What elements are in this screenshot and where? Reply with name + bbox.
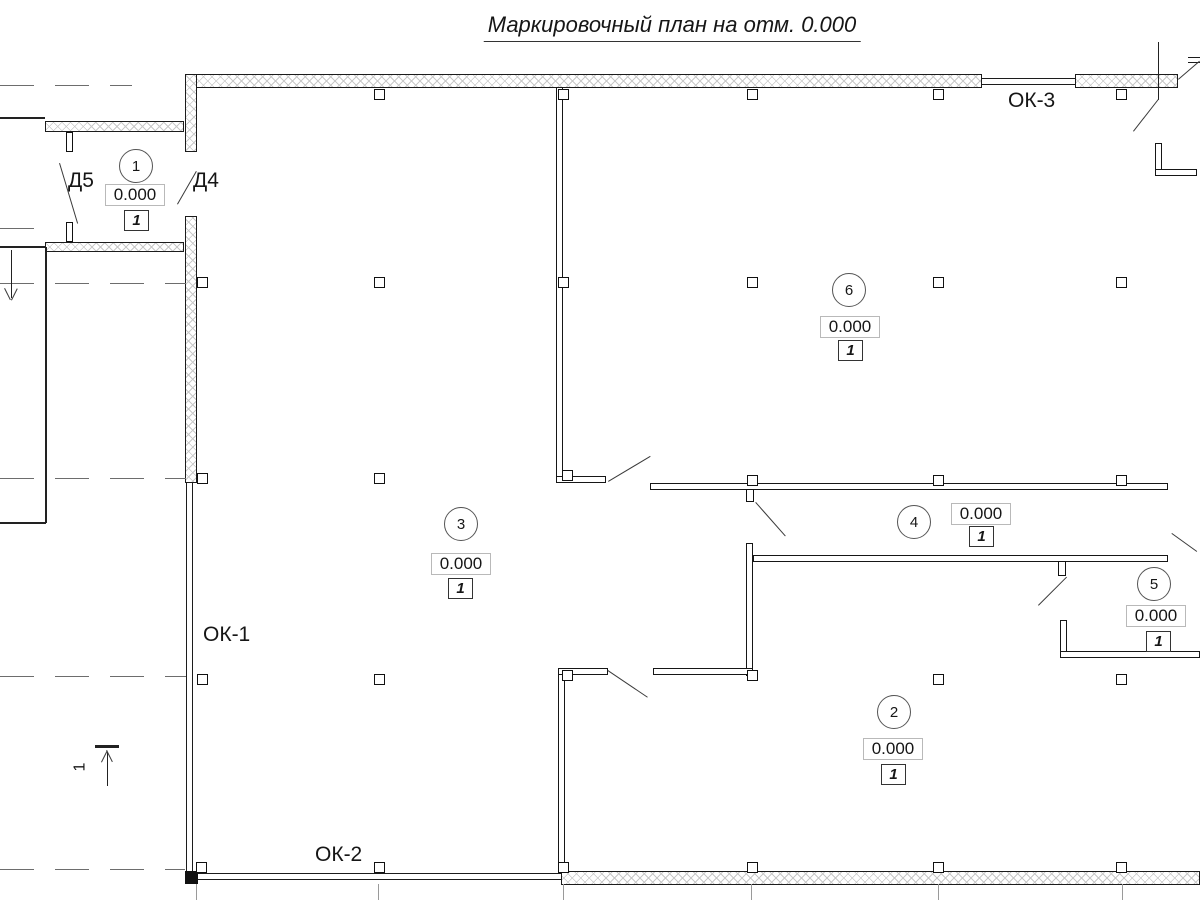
door-swing-room2-left [607, 670, 647, 698]
column-marker [374, 277, 385, 288]
wall-top-right-segment [1075, 74, 1178, 88]
grid-line [938, 884, 939, 900]
column-marker [747, 89, 758, 100]
column-marker [374, 862, 385, 873]
window-label-ok3: ОК-3 [1008, 89, 1055, 113]
partition-horizontal-room4 [753, 555, 1168, 562]
room-floortype-3: 1 [448, 578, 473, 599]
door-swing-room4-left [755, 502, 786, 536]
door-jamb-room2 [1058, 561, 1066, 576]
room-elevation-1: 0.000 [105, 184, 165, 206]
room-floortype-4: 1 [969, 526, 994, 547]
floor-plan: Маркировочный план на отм. 0.000 [0, 0, 1200, 900]
door-leaf-topright [1158, 42, 1159, 100]
partition-horizontal-room2 [653, 668, 753, 675]
direction-arrow-stem [11, 250, 12, 298]
edge-line-topleft [0, 117, 45, 119]
room-number-6: 6 [832, 273, 866, 307]
door-swing-room5 [1171, 533, 1197, 552]
ramp-right-line [45, 247, 47, 523]
grid-line [1122, 884, 1123, 900]
column-marker [558, 862, 569, 873]
room-number-2: 2 [877, 695, 911, 729]
column-marker [562, 470, 573, 481]
section-mark-bar [95, 745, 119, 748]
axis-dashed-5 [0, 676, 186, 677]
room-number-3: 3 [444, 507, 478, 541]
room-floortype-2: 1 [881, 764, 906, 785]
window-label-ok2: ОК-2 [315, 843, 362, 867]
door-jamb-room4 [746, 489, 754, 502]
ramp-bottom-line [0, 522, 46, 524]
axis-dashed-2 [0, 228, 43, 229]
wall-vestibule-top [45, 121, 184, 132]
axis-dashed-1 [0, 85, 132, 86]
section-mark-number: 1 [71, 763, 89, 772]
door-jamb-d5-top [66, 132, 73, 152]
grid-line [378, 884, 379, 900]
grid-line [196, 884, 197, 900]
direction-arrow-head [11, 288, 18, 300]
door-label-d4: Д4 [193, 169, 219, 193]
column-marker [374, 89, 385, 100]
column-marker [558, 89, 569, 100]
room-elevation-4: 0.000 [951, 503, 1011, 525]
column-marker [374, 674, 385, 685]
column-marker [747, 475, 758, 486]
room-number-4: 4 [897, 505, 931, 539]
door-jamb-d5-bottom [66, 222, 73, 242]
column-marker [747, 862, 758, 873]
column-marker [933, 89, 944, 100]
column-marker [197, 674, 208, 685]
wall-left-upper [185, 74, 197, 152]
column-marker [933, 674, 944, 685]
direction-arrow-head [4, 288, 11, 300]
column-marker [933, 277, 944, 288]
partition-l-topright-horizontal [1155, 169, 1197, 176]
wall-top-left-segment [188, 74, 982, 88]
column-marker [562, 670, 573, 681]
partition-horizontal-room6 [650, 483, 1168, 490]
column-marker [747, 670, 758, 681]
door-label-d5: Д5 [68, 169, 94, 193]
grid-line [563, 884, 564, 900]
room-number-1: 1 [119, 149, 153, 183]
partition-vertical-room3 [558, 668, 565, 873]
window-label-ok1: ОК-1 [203, 623, 250, 647]
wall-vestibule-bottom [45, 242, 184, 252]
column-marker [1116, 862, 1127, 873]
room-elevation-5: 0.000 [1126, 605, 1186, 627]
column-marker [1116, 277, 1127, 288]
door-swing-room6 [608, 456, 651, 482]
page-title: Маркировочный план на отм. 0.000 [484, 12, 861, 42]
partition-l-room5-horizontal [1060, 651, 1200, 658]
column-marker [933, 862, 944, 873]
room-elevation-3: 0.000 [431, 553, 491, 575]
room-floortype-6: 1 [838, 340, 863, 361]
room-floortype-5: 1 [1146, 631, 1171, 652]
column-marker [747, 277, 758, 288]
column-marker [374, 473, 385, 484]
column-marker [558, 277, 569, 288]
column-marker [1116, 475, 1127, 486]
axis-dashed-4 [0, 478, 186, 479]
column-marker [197, 277, 208, 288]
window-ok1-opening [186, 483, 193, 873]
column-marker [1116, 674, 1127, 685]
room-elevation-2: 0.000 [863, 738, 923, 760]
axis-dashed-3 [0, 283, 186, 284]
column-marker [1116, 89, 1127, 100]
grid-line [751, 884, 752, 900]
door-swing-room2-right [1038, 577, 1067, 606]
wall-left-lower [185, 216, 197, 483]
column-marker [197, 473, 208, 484]
window-ok3-opening [982, 78, 1075, 85]
partition-vertical-room2 [746, 543, 753, 676]
column-marker [196, 862, 207, 873]
room-number-5: 5 [1137, 567, 1171, 601]
axis-dashed-6 [0, 869, 185, 870]
room-elevation-6: 0.000 [820, 316, 880, 338]
window-ok2-opening [191, 873, 561, 880]
section-mark-stem [107, 752, 108, 786]
column-marker [933, 475, 944, 486]
room-floortype-1: 1 [124, 210, 149, 231]
door-swing-topright-corner [1178, 61, 1200, 80]
door-swing-topright-inner [1133, 99, 1159, 132]
ramp-top-line [0, 246, 46, 248]
wall-bottom [561, 871, 1200, 885]
